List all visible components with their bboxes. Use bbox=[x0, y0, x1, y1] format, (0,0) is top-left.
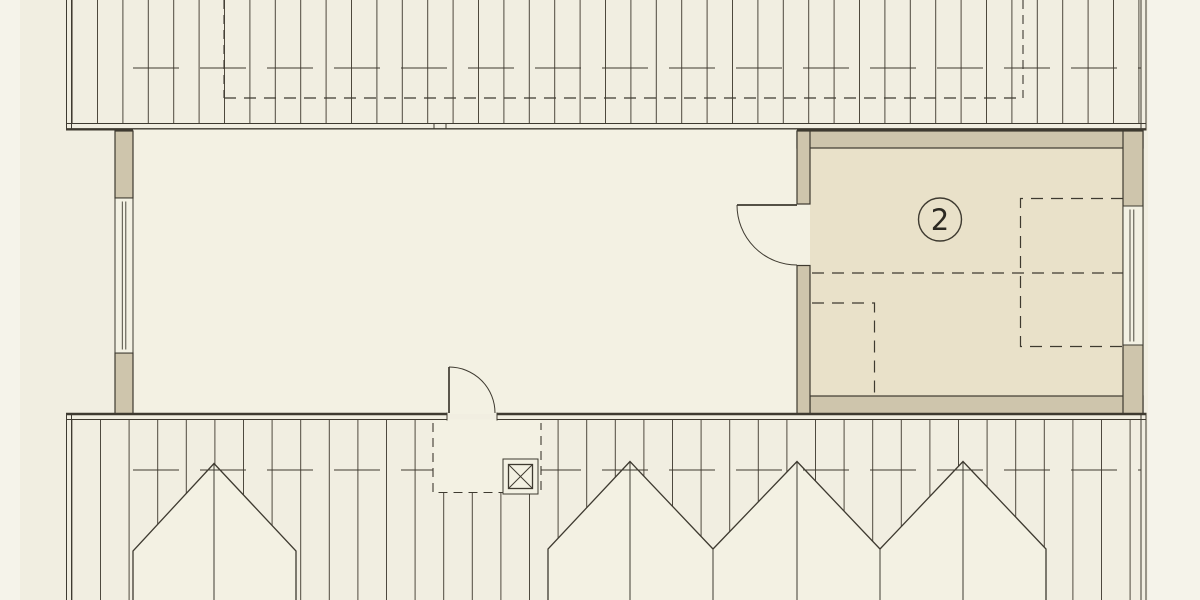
room-2-bottom-wall bbox=[810, 396, 1143, 414]
page-margin-left bbox=[0, 0, 20, 600]
main-room-floor bbox=[133, 130, 797, 415]
wall-partition-lower bbox=[797, 266, 810, 415]
window-right bbox=[1123, 206, 1143, 345]
roof-band-bottom bbox=[66, 413, 1147, 600]
page-margin-right bbox=[1148, 0, 1200, 600]
wall-partition-upper bbox=[797, 131, 810, 204]
roof-band-top bbox=[66, 0, 1147, 131]
roof-decking-hatch-top bbox=[72, 0, 1141, 124]
room-2-number-label: 2 bbox=[931, 203, 949, 237]
floor-level: 2 bbox=[115, 130, 1143, 415]
wall-left-upper-pier bbox=[115, 131, 133, 198]
room-2-top-wall bbox=[797, 131, 1143, 148]
wall-left-lower-pier bbox=[115, 353, 133, 414]
room-2-floor bbox=[810, 148, 1123, 396]
chimney bbox=[503, 459, 538, 494]
window-left bbox=[115, 198, 133, 353]
floor-plan-canvas: 2 bbox=[0, 0, 1200, 600]
